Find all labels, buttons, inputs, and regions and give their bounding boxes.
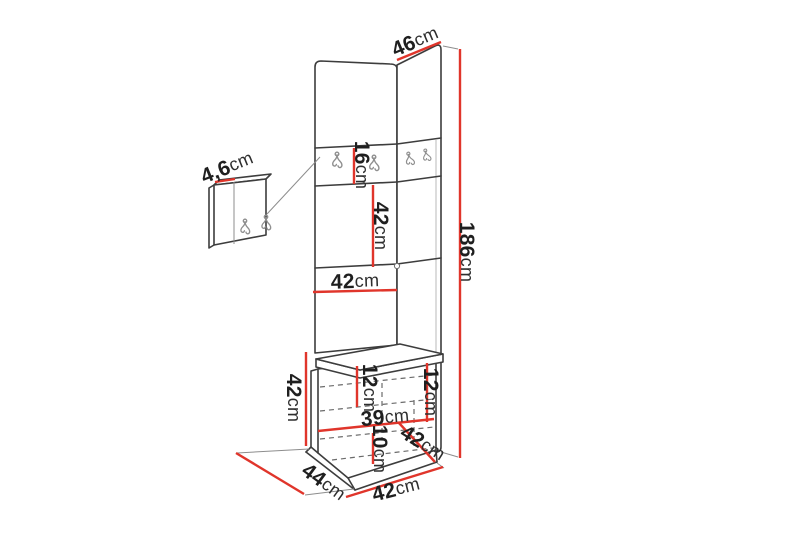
diagram-canvas: 46cm 186cm 16cm 42cm 42cm 4,6cm 42cm 12c… (0, 0, 800, 533)
dim-label-panel-width: 42cm (330, 269, 379, 294)
hook-panel-front (214, 179, 266, 245)
dim-label-total-height: 186cm (456, 222, 479, 283)
dim-label-upper-section-height: 42cm (370, 202, 393, 251)
dim-label-bench-inner-bottom: 10cm (369, 425, 392, 474)
dim-label-bench-inner-right: 12cm (420, 368, 443, 417)
dim-label-hook-strip-height: 16cm (351, 141, 374, 190)
corner-button (394, 263, 399, 268)
dim-label-bench-height: 42cm (283, 374, 306, 423)
dim-label-bench-inner-left: 12cm (359, 364, 382, 413)
